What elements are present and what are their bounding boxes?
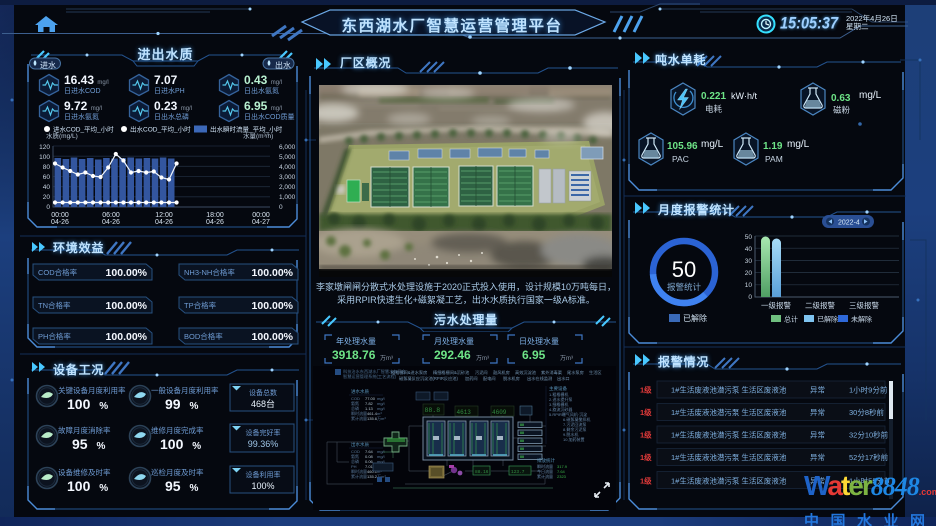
svg-text:一般设备月度利用率: 一般设备月度利用率 [151, 385, 219, 395]
svg-text:电耗: 电耗 [705, 104, 723, 114]
svg-text:1小时9分前: 1小时9分前 [849, 385, 888, 395]
svg-text:04-27: 04-27 [252, 219, 270, 224]
svg-text:异常: 异常 [810, 386, 825, 395]
svg-text:95 %: 95 % [72, 436, 105, 452]
svg-text:3918.76: 3918.76 [332, 348, 376, 362]
svg-text:1,000: 1,000 [279, 194, 296, 201]
svg-text:万m³: 万m³ [380, 355, 393, 362]
svg-text:设备完好率: 设备完好率 [246, 428, 281, 437]
svg-text:异常: 异常 [810, 408, 825, 417]
svg-text:月处理水量: 月处理水量 [434, 336, 474, 346]
svg-text:日处理水量: 日处理水量 [519, 336, 559, 346]
svg-text:6,000: 6,000 [279, 144, 296, 151]
svg-text:年处理水量: 年处理水量 [336, 336, 376, 346]
svg-text:报警统计: 报警统计 [667, 282, 702, 292]
svg-text:18:00: 18:00 [206, 212, 224, 219]
svg-text:二级报警: 二级报警 [805, 300, 835, 310]
svg-text:20: 20 [745, 270, 753, 277]
svg-text:0.63: 0.63 [831, 93, 851, 104]
svg-text:设备总数: 设备总数 [249, 388, 277, 397]
svg-text:1.19: 1.19 [763, 141, 783, 152]
svg-text:04-26: 04-26 [206, 219, 224, 224]
svg-text:BOD合格率: BOD合格率 [184, 331, 223, 341]
svg-text:mg/L: mg/L [859, 90, 882, 101]
svg-text:水质(mg/L): 水质(mg/L) [46, 131, 78, 140]
svg-text:巡检月度及时率: 巡检月度及时率 [151, 467, 204, 477]
svg-text:50: 50 [745, 234, 753, 241]
svg-text:故障月度消除率: 故障月度消除率 [58, 425, 111, 435]
svg-text:100.00%: 100.00% [106, 267, 148, 279]
svg-text:mg/L: mg/L [787, 139, 810, 150]
svg-text:100 %: 100 % [67, 396, 108, 412]
svg-text:468台: 468台 [251, 398, 275, 409]
svg-text:1#生活废液池潜污泵 生活区废液池: 1#生活废液池潜污泵 生活区废液池 [671, 385, 787, 395]
svg-text:04-26: 04-26 [51, 219, 69, 224]
svg-text:1#生活废液池潜污泵 生活区废液池: 1#生活废液池潜污泵 生活区废液池 [671, 452, 787, 462]
svg-text:100.00%: 100.00% [252, 331, 294, 343]
svg-text:万m³: 万m³ [476, 355, 489, 362]
svg-text:100%: 100% [251, 481, 274, 491]
svg-text:PH合格率: PH合格率 [38, 331, 71, 341]
svg-text:未解除: 未解除 [851, 315, 872, 324]
svg-text:30分8秒前: 30分8秒前 [849, 407, 885, 417]
svg-text:100.00%: 100.00% [252, 300, 294, 312]
svg-text:水量(m³/h): 水量(m³/h) [243, 131, 273, 140]
svg-text:1#生活废液池潜污泵 生活区废液池: 1#生活废液池潜污泵 生活区废液池 [671, 407, 787, 417]
svg-text:PAC: PAC [672, 154, 689, 164]
svg-text:异常: 异常 [810, 453, 825, 462]
svg-text:12:00: 12:00 [155, 212, 173, 219]
svg-text:1级: 1级 [640, 407, 652, 417]
svg-text:0.221: 0.221 [701, 91, 726, 102]
svg-text:5,000: 5,000 [279, 154, 296, 161]
svg-text:1级: 1级 [640, 476, 652, 486]
svg-text:异常: 异常 [810, 431, 825, 440]
svg-text:万m³: 万m³ [560, 355, 573, 362]
svg-text:10: 10 [745, 282, 753, 289]
svg-text:1级: 1级 [640, 452, 652, 462]
svg-text:设备维修及时率: 设备维修及时率 [58, 467, 111, 477]
svg-text:磁粉: 磁粉 [833, 105, 851, 115]
svg-text:100.00%: 100.00% [106, 331, 148, 343]
svg-text:维修月度完成率: 维修月度完成率 [151, 425, 204, 435]
svg-text:已解除: 已解除 [683, 313, 707, 323]
svg-text:设备利用率: 设备利用率 [246, 470, 281, 479]
svg-text:1#生活废液池潜污泵 生活区废液池: 1#生活废液池潜污泵 生活区废液池 [671, 476, 787, 486]
svg-text:0: 0 [279, 204, 283, 211]
svg-text:00:00: 00:00 [51, 212, 69, 219]
svg-text:32分10秒前: 32分10秒前 [849, 430, 889, 440]
svg-text:2022-4: 2022-4 [838, 220, 860, 227]
svg-text:0: 0 [748, 294, 752, 301]
svg-text:1级: 1级 [640, 385, 652, 395]
svg-text:0: 0 [46, 204, 50, 211]
svg-text:30: 30 [745, 258, 753, 265]
svg-text:100: 100 [39, 154, 50, 161]
svg-text:80: 80 [43, 164, 51, 171]
svg-text:120: 120 [39, 144, 50, 151]
svg-text:292.46: 292.46 [434, 348, 471, 362]
svg-text:TP合格率: TP合格率 [184, 300, 217, 310]
svg-text:出水COD_平均_小时: 出水COD_平均_小时 [130, 125, 191, 134]
svg-text:总计: 总计 [784, 315, 798, 324]
svg-text:100.00%: 100.00% [252, 267, 294, 279]
svg-text:3,000: 3,000 [279, 174, 296, 181]
svg-text:mg/L: mg/L [701, 139, 724, 150]
svg-text:COD合格率: COD合格率 [38, 267, 78, 277]
svg-text:NH3-NH合格率: NH3-NH合格率 [184, 267, 235, 277]
svg-text:1级: 1级 [640, 430, 652, 440]
svg-text:06:00: 06:00 [102, 212, 120, 219]
svg-text:40: 40 [745, 246, 753, 253]
svg-text:100.00%: 100.00% [106, 300, 148, 312]
svg-text:99.36%: 99.36% [248, 439, 279, 449]
svg-text:95 %: 95 % [165, 478, 198, 494]
svg-text:2,000: 2,000 [279, 184, 296, 191]
svg-text:105.96: 105.96 [667, 141, 698, 152]
svg-text:关键设备月度利用率: 关键设备月度利用率 [58, 385, 126, 395]
svg-text:52分17秒前: 52分17秒前 [849, 452, 889, 462]
svg-text:4,000: 4,000 [279, 164, 296, 171]
svg-text:PAM: PAM [765, 154, 783, 164]
svg-text:三级报警: 三级报警 [849, 300, 879, 310]
svg-text:1#生活废液池潜污泵 生活区废液池: 1#生活废液池潜污泵 生活区废液池 [671, 430, 787, 440]
svg-text:40: 40 [43, 184, 51, 191]
svg-text:60: 60 [43, 174, 51, 181]
svg-text:100 %: 100 % [67, 478, 108, 494]
svg-text:已解除: 已解除 [817, 315, 838, 324]
svg-text:04-26: 04-26 [102, 219, 120, 224]
svg-text:TN合格率: TN合格率 [38, 300, 71, 310]
svg-text:6.95: 6.95 [522, 348, 546, 362]
svg-text:04-26: 04-26 [155, 219, 173, 224]
svg-text:kW·h/t: kW·h/t [731, 91, 757, 101]
svg-text:100 %: 100 % [160, 436, 201, 452]
svg-text:00:00: 00:00 [252, 212, 270, 219]
svg-text:99 %: 99 % [165, 396, 198, 412]
svg-text:50: 50 [672, 257, 696, 282]
svg-text:20: 20 [43, 194, 51, 201]
svg-text:一级报警: 一级报警 [761, 300, 791, 310]
